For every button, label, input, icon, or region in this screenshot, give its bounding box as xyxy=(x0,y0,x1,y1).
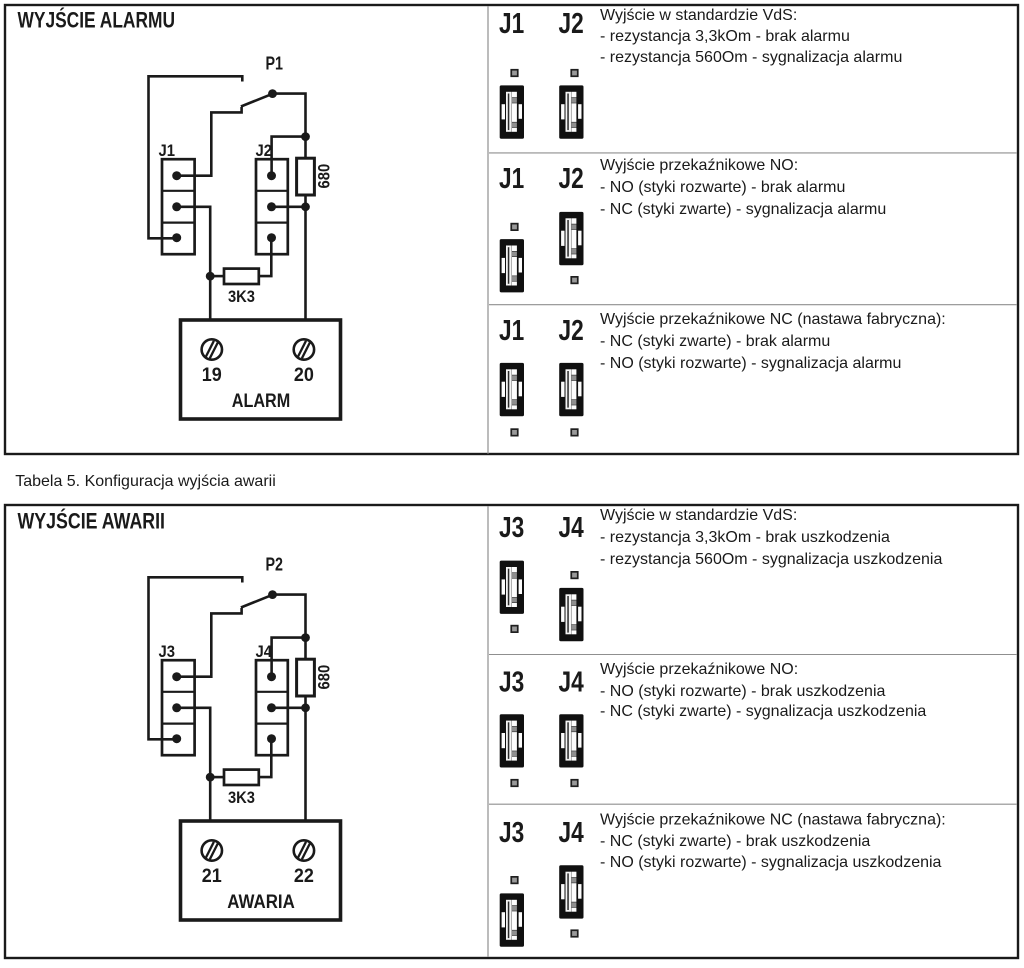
svg-text:3K3: 3K3 xyxy=(228,288,255,306)
svg-text:- NC (styki zwarte) - sygnaliz: - NC (styki zwarte) - sygnalizacja alarm… xyxy=(600,201,886,218)
svg-text:- rezystancja 560Om - sygnaliz: - rezystancja 560Om - sygnalizacja uszko… xyxy=(600,551,942,568)
svg-text:680: 680 xyxy=(314,665,333,690)
svg-text:- rezystancja 3,3kOm - brak us: - rezystancja 3,3kOm - brak uszkodzenia xyxy=(600,529,890,546)
svg-text:Tabela 5. Konfiguracja wyjścia: Tabela 5. Konfiguracja wyjścia awarii xyxy=(15,473,276,490)
svg-text:J1: J1 xyxy=(499,315,524,347)
svg-text:J4: J4 xyxy=(558,667,583,699)
svg-text:Wyjście przekaźnikowe NO:: Wyjście przekaźnikowe NO: xyxy=(600,157,798,174)
svg-text:P2: P2 xyxy=(265,554,283,574)
svg-text:J2: J2 xyxy=(256,141,273,160)
svg-text:- NO (styki rozwarte) - brak a: - NO (styki rozwarte) - brak alarmu xyxy=(600,179,845,196)
svg-text:Wyjście w standardzie VdS:: Wyjście w standardzie VdS: xyxy=(600,507,797,524)
svg-text:- NC (styki zwarte) - sygnaliz: - NC (styki zwarte) - sygnalizacja uszko… xyxy=(600,703,926,720)
svg-text:J3: J3 xyxy=(499,512,524,544)
svg-text:Wyjście przekaźnikowe NC (nast: Wyjście przekaźnikowe NC (nastawa fabryc… xyxy=(600,811,946,828)
svg-text:19: 19 xyxy=(202,365,222,386)
svg-text:- NO (styki rozwarte) - sygnal: - NO (styki rozwarte) - sygnalizacja ala… xyxy=(600,355,901,372)
svg-text:- NC (styki zwarte) - brak ala: - NC (styki zwarte) - brak alarmu xyxy=(600,333,830,350)
svg-text:J1: J1 xyxy=(499,163,524,195)
svg-text:J3: J3 xyxy=(499,817,524,849)
svg-text:- NO (styki rozwarte) - sygnal: - NO (styki rozwarte) - sygnalizacja usz… xyxy=(600,854,942,871)
svg-text:20: 20 xyxy=(294,365,314,386)
svg-text:J2: J2 xyxy=(559,163,584,195)
svg-text:- NO (styki rozwarte) - brak u: - NO (styki rozwarte) - brak uszkodzenia xyxy=(600,683,886,700)
svg-text:21: 21 xyxy=(202,866,222,887)
svg-text:J1: J1 xyxy=(159,141,176,160)
svg-text:- rezystancja 560Om - sygnaliz: - rezystancja 560Om - sygnalizacja alarm… xyxy=(600,49,902,66)
svg-text:Wyjście przekaźnikowe NO:: Wyjście przekaźnikowe NO: xyxy=(600,661,798,678)
svg-text:Wyjście przekaźnikowe NC (nast: Wyjście przekaźnikowe NC (nastawa fabryc… xyxy=(600,311,946,328)
svg-text:- NC (styki zwarte) - brak usz: - NC (styki zwarte) - brak uszkodzenia xyxy=(600,833,870,850)
svg-text:WYJŚCIE AWARII: WYJŚCIE AWARII xyxy=(17,508,165,533)
svg-text:J3: J3 xyxy=(499,667,524,699)
svg-text:Wyjście w standardzie VdS:: Wyjście w standardzie VdS: xyxy=(600,7,797,24)
svg-text:3K3: 3K3 xyxy=(228,789,255,807)
svg-text:J4: J4 xyxy=(558,512,583,544)
svg-text:- rezystancja 3,3kOm - brak al: - rezystancja 3,3kOm - brak alarmu xyxy=(600,28,850,45)
svg-text:J2: J2 xyxy=(559,8,584,40)
svg-text:J2: J2 xyxy=(559,315,584,347)
svg-text:AWARIA: AWARIA xyxy=(227,892,295,913)
svg-text:WYJŚCIE ALARMU: WYJŚCIE ALARMU xyxy=(18,7,176,32)
svg-text:680: 680 xyxy=(314,164,333,189)
svg-text:J3: J3 xyxy=(158,642,175,661)
svg-text:J4: J4 xyxy=(255,642,272,661)
svg-text:J1: J1 xyxy=(499,8,524,40)
svg-text:ALARM: ALARM xyxy=(232,391,291,412)
svg-text:22: 22 xyxy=(294,866,314,887)
svg-text:P1: P1 xyxy=(266,53,284,73)
svg-text:J4: J4 xyxy=(558,817,583,849)
